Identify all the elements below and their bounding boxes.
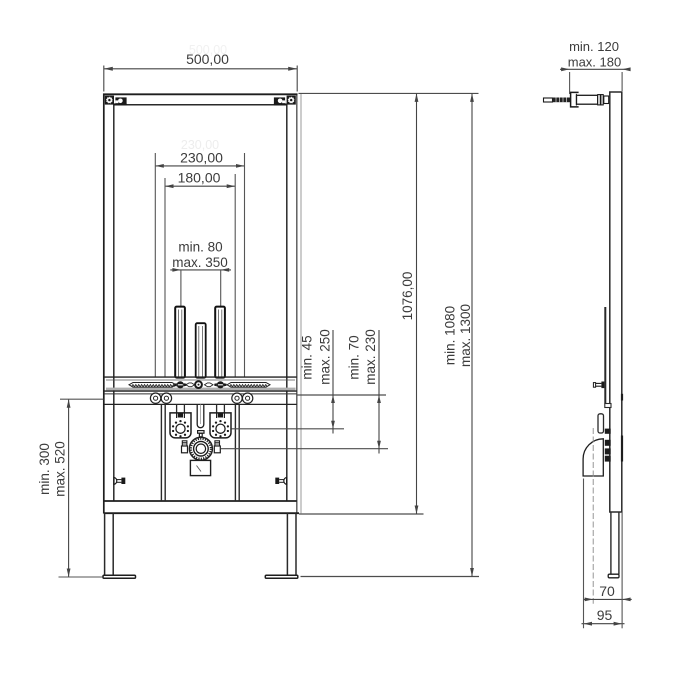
svg-text:70: 70 [599,583,615,599]
svg-text:95: 95 [597,607,613,623]
svg-text:min. 300: min. 300 [37,443,52,495]
svg-text:min. 80: min. 80 [178,240,222,255]
svg-text:min. 45: min. 45 [300,335,315,379]
svg-text:230,00: 230,00 [180,150,223,166]
svg-text:max. 1300: max. 1300 [458,304,473,367]
svg-text:min. 120: min. 120 [569,39,619,54]
svg-text:min. 70: min. 70 [347,335,362,379]
svg-text:max. 230: max. 230 [363,329,378,385]
svg-text:1076,00: 1076,00 [400,272,415,321]
svg-text:max. 350: max. 350 [172,255,228,270]
svg-text:max. 250: max. 250 [318,329,333,385]
svg-text:max. 180: max. 180 [568,55,621,70]
svg-text:max. 520: max. 520 [53,441,68,497]
svg-text:180,00: 180,00 [178,170,221,186]
svg-text:500,00: 500,00 [186,51,229,67]
svg-text:min. 1080: min. 1080 [443,306,458,365]
